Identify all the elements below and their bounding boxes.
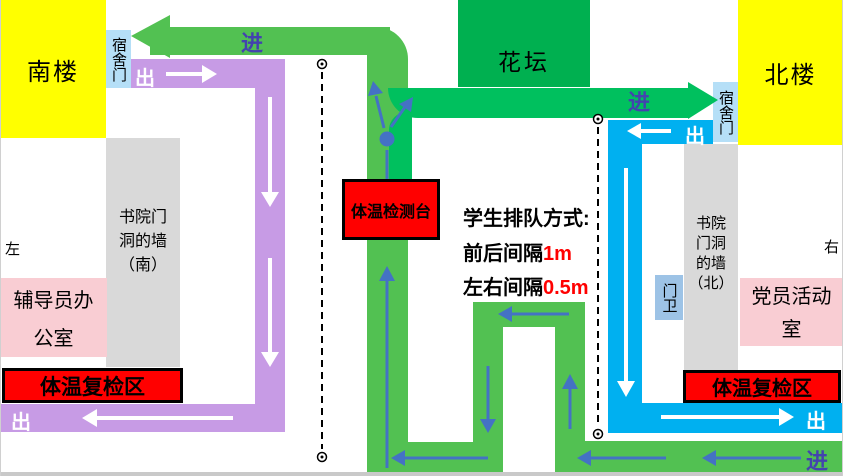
enter-label-south: 进 [241,26,263,58]
recheck-zone-left-label: 体温复检区 [40,371,145,401]
reference-line-left [318,60,327,462]
recheck-zone-right-label: 体温复检区 [712,372,812,401]
queue-instructions-title: 学生排队方式: [463,202,590,231]
bottom-edge-line [0,472,843,476]
enter-arrowhead-south [131,15,170,58]
exit-label-north-bottom: 出 [806,405,826,434]
temperature-check-station-label: 体温检测台 [351,198,431,222]
queue-spacing-left-right: 左右间隔0.5m [463,271,589,300]
enter-arrowhead-north [688,82,718,119]
exit-label-south-gate: 出 [135,62,155,91]
campus-temperature-check-diagram: 南楼 北楼 花坛 书院门 洞的墙 （南） 书院 门洞 的墙 （北） 辅导员办 公… [0,0,843,476]
recheck-zone-left: 体温复检区 [2,368,183,403]
queue-spacing-front-back: 前后间隔1m [463,237,572,266]
exit-label-south-bottom: 出 [11,406,31,435]
queue-row1-label: 前后间隔 [463,243,543,265]
reference-line-right [594,115,603,439]
queue-row1-value: 1m [543,243,572,265]
enter-label-north: 进 [628,85,650,117]
exit-label-north-gate: 出 [685,120,705,149]
side-label-right: 右 [824,236,839,257]
split-point-dot [380,132,395,147]
queue-row2-value: 0.5m [543,277,589,299]
left-edge-line [0,0,1,476]
queue-row2-label: 左右间隔 [463,277,543,299]
recheck-zone-right: 体温复检区 [683,370,841,403]
side-label-left: 左 [5,238,20,259]
temperature-check-station: 体温检测台 [342,179,440,240]
